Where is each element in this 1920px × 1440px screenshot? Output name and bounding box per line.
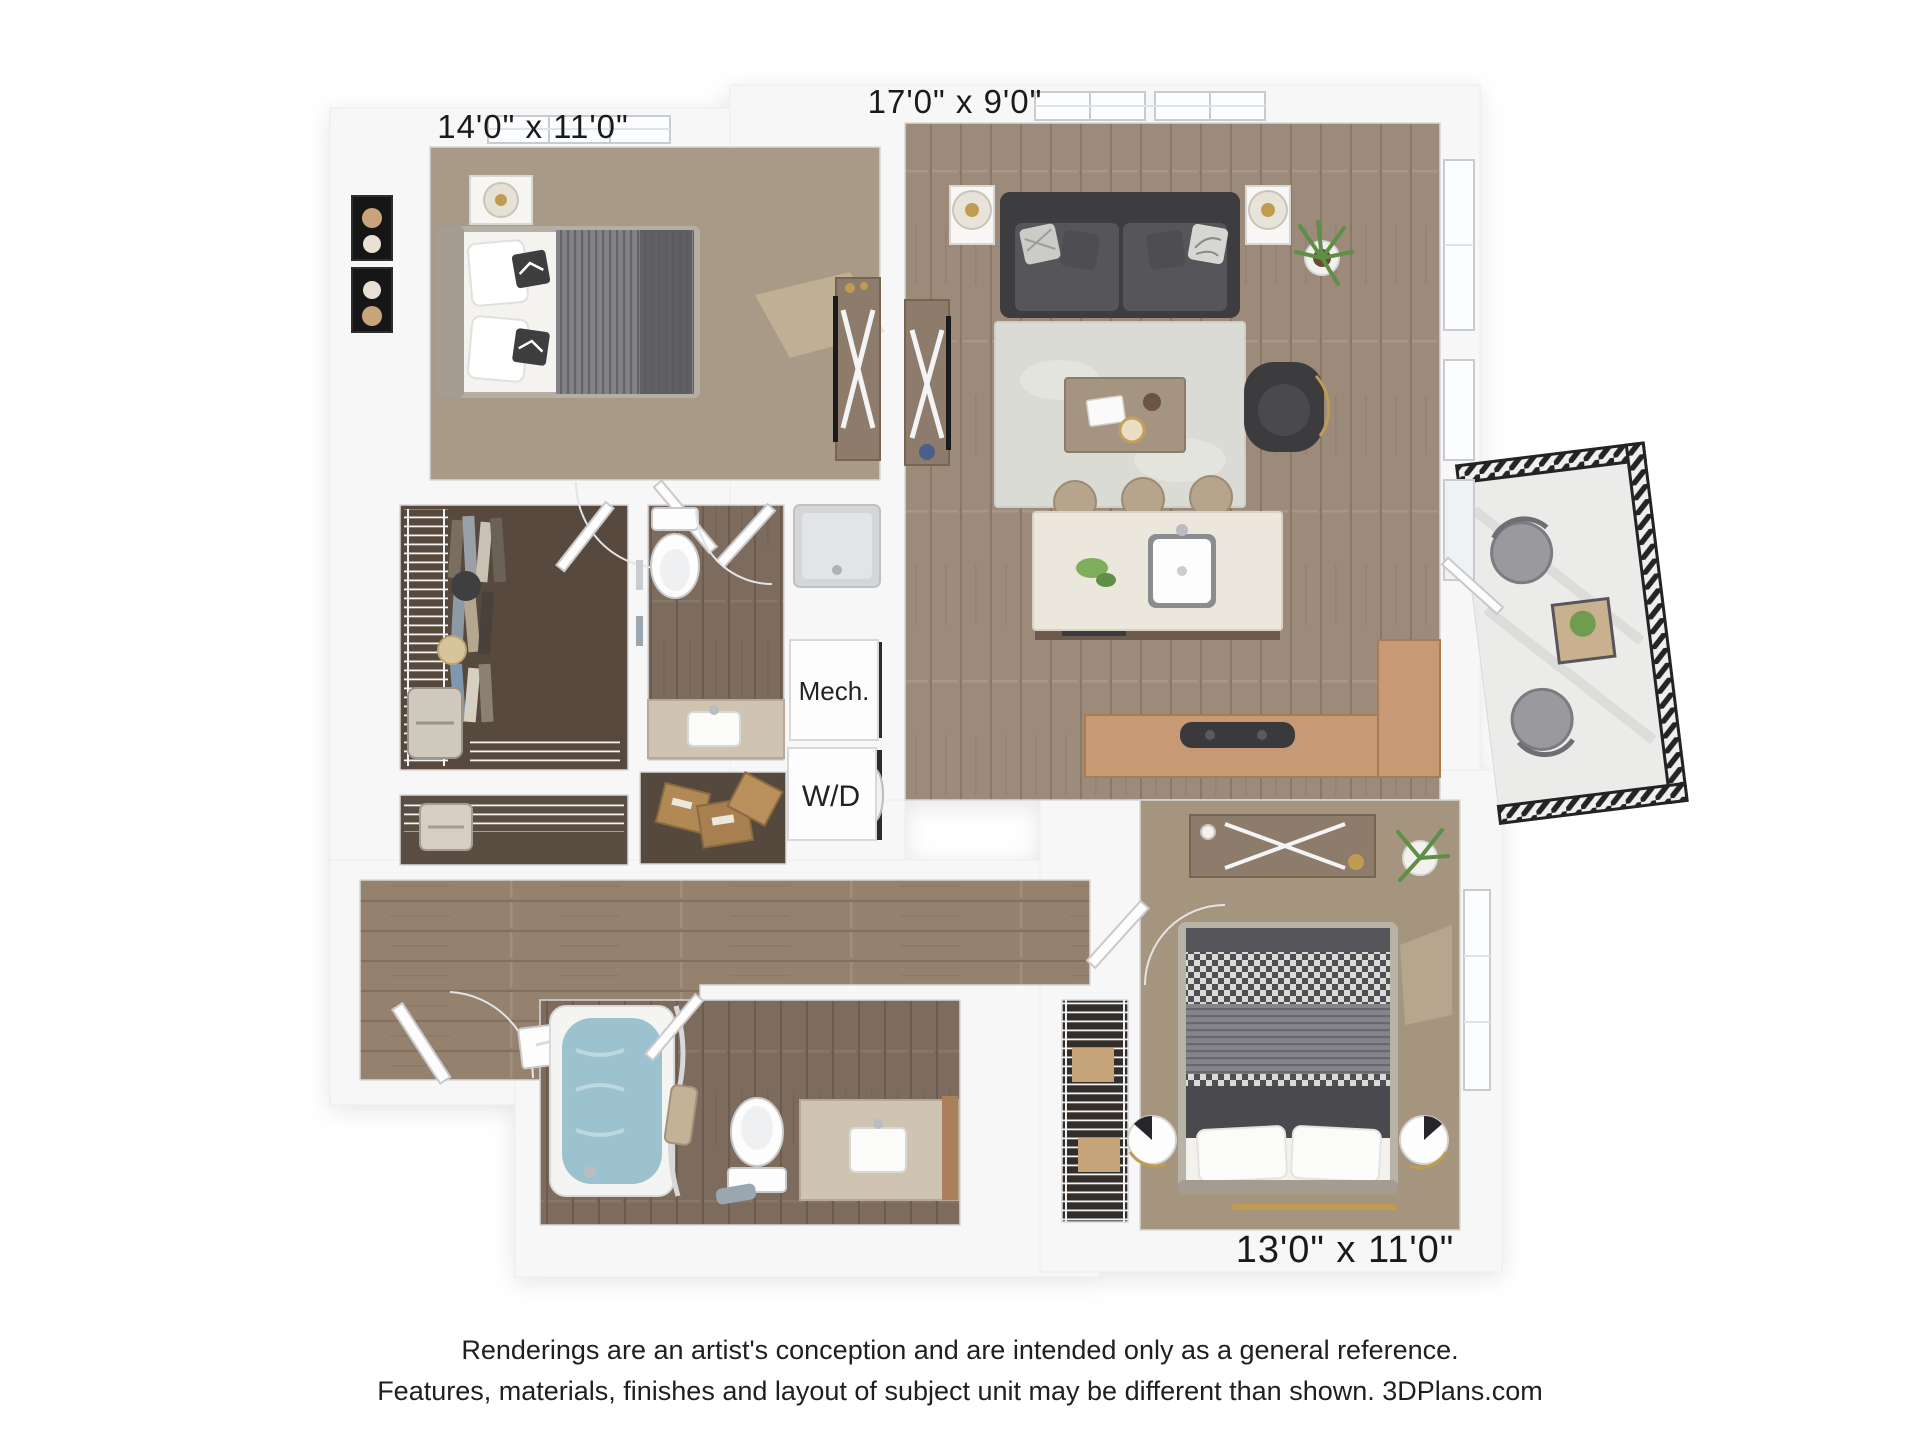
nightstand-lamp	[1128, 1116, 1176, 1166]
magazine	[1086, 396, 1125, 427]
bowl	[1120, 418, 1144, 442]
pillow	[1197, 1126, 1288, 1183]
headboard	[438, 226, 464, 398]
decor-object	[919, 444, 935, 460]
faucet	[709, 705, 719, 715]
faucet	[873, 1119, 883, 1129]
accent-chair	[1244, 362, 1329, 452]
living-dimensions: 17'0" x 9'0"	[868, 83, 1043, 120]
faucet	[1176, 524, 1188, 536]
storage-bin	[1078, 1138, 1120, 1172]
towel	[636, 616, 643, 646]
window	[1464, 890, 1490, 1090]
striped-blanket	[1186, 1004, 1390, 1074]
coffee-table	[1065, 378, 1185, 452]
window	[1444, 360, 1474, 460]
tv	[946, 316, 951, 450]
sofa	[1000, 192, 1240, 318]
mech-closet: Mech.	[790, 640, 882, 740]
wire-shelf	[470, 738, 620, 764]
kitchen-counter-return	[1378, 640, 1440, 777]
cooktop	[1180, 722, 1295, 748]
houndstooth-blanket	[1186, 952, 1390, 1004]
vanity-sink	[850, 1128, 906, 1172]
accent-pillow	[512, 328, 550, 366]
bed	[438, 226, 700, 398]
storage-bin	[1072, 1048, 1114, 1082]
throw-pillow	[1187, 223, 1229, 265]
toilet-tank	[652, 508, 698, 530]
bedroom1-dimensions: 14'0" x 11'0"	[437, 108, 629, 145]
closet-shelving	[1062, 1000, 1128, 1222]
decor-runner	[1232, 1204, 1397, 1210]
disclaimer-line2: Features, materials, finishes and layout…	[0, 1371, 1920, 1412]
throw-pillow	[1060, 230, 1101, 271]
hat	[438, 636, 466, 664]
towel-bar	[636, 560, 643, 590]
desk-decor	[1201, 825, 1215, 839]
throw-pillow	[1146, 230, 1187, 271]
headboard	[1178, 1180, 1398, 1194]
tub-faucet	[584, 1166, 596, 1178]
washer-dryer-closet: W/D	[788, 748, 883, 840]
floor-plan: Mech. W/D	[0, 0, 1920, 1440]
shower-drain	[832, 565, 842, 575]
pillow	[1291, 1126, 1382, 1183]
mech-label: Mech.	[799, 676, 870, 706]
vanity-sink	[688, 712, 740, 746]
desk	[1190, 815, 1375, 877]
balcony	[1457, 443, 1687, 823]
accent-pillow	[511, 249, 550, 288]
bedroom2-dimensions: 13'0" x 11'0"	[1236, 1229, 1455, 1271]
bed	[1178, 922, 1398, 1194]
wd-label: W/D	[802, 780, 860, 813]
disclaimer-line1: Renderings are an artist's conception an…	[0, 1330, 1920, 1371]
desk-lamp	[1348, 854, 1364, 870]
tv	[833, 296, 838, 442]
tub-water	[562, 1018, 662, 1184]
floor-plan-rendering: Mech. W/D	[0, 0, 1920, 1440]
hat	[451, 571, 481, 601]
vase	[1143, 393, 1161, 411]
linen-cabinet	[942, 1096, 958, 1200]
disclaimer: Renderings are an artist's conception an…	[0, 1330, 1920, 1412]
